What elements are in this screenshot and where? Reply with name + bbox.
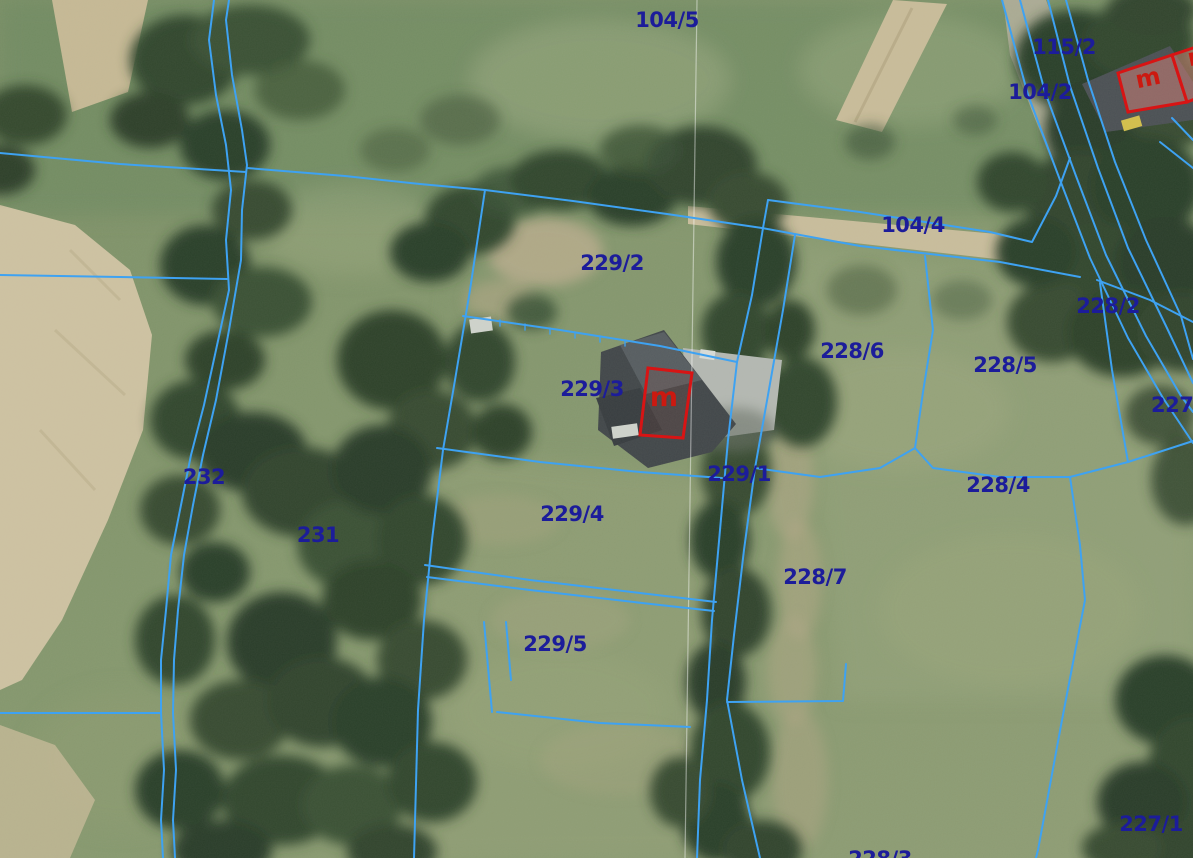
parcel-label-229-2: 229/2 [580, 251, 644, 275]
parcel-label-104-2: 104/2 [1008, 80, 1072, 104]
aerial-photo-background [0, 0, 1193, 858]
parcel-label-231: 231 [297, 523, 339, 547]
parcel-label-227-right-edge: 227/1 [1151, 393, 1193, 417]
parcel-label-228-5: 228/5 [973, 353, 1037, 377]
parcel-label-229-1: 229/1 [707, 462, 771, 486]
parcel-label-229-4: 229/4 [540, 502, 604, 526]
photo-grain [0, 0, 1193, 858]
cadastral-map-canvas[interactable]: 104/5 115/2 104/2 104/4 229/2 228/2 228/… [0, 0, 1193, 858]
building-letter-center: m [650, 382, 678, 413]
parcel-label-229-3: 229/3 [560, 377, 624, 401]
parcel-label-228-2: 228/2 [1076, 294, 1140, 318]
parcel-label-229-5: 229/5 [523, 632, 587, 656]
map-image: 104/5 115/2 104/2 104/4 229/2 228/2 228/… [0, 0, 1193, 858]
parcel-label-232: 232 [183, 465, 225, 489]
parcel-label-228-4: 228/4 [966, 473, 1030, 497]
parcel-label-104-4: 104/4 [881, 213, 945, 237]
parcel-label-104-5: 104/5 [635, 8, 699, 32]
parcel-label-115-2: 115/2 [1032, 35, 1096, 59]
parcel-label-227-1: 227/1 [1119, 812, 1183, 836]
parcel-label-228-3: 228/3 [848, 847, 912, 858]
parcel-label-228-7: 228/7 [783, 565, 847, 589]
parcel-label-228-6: 228/6 [820, 339, 884, 363]
